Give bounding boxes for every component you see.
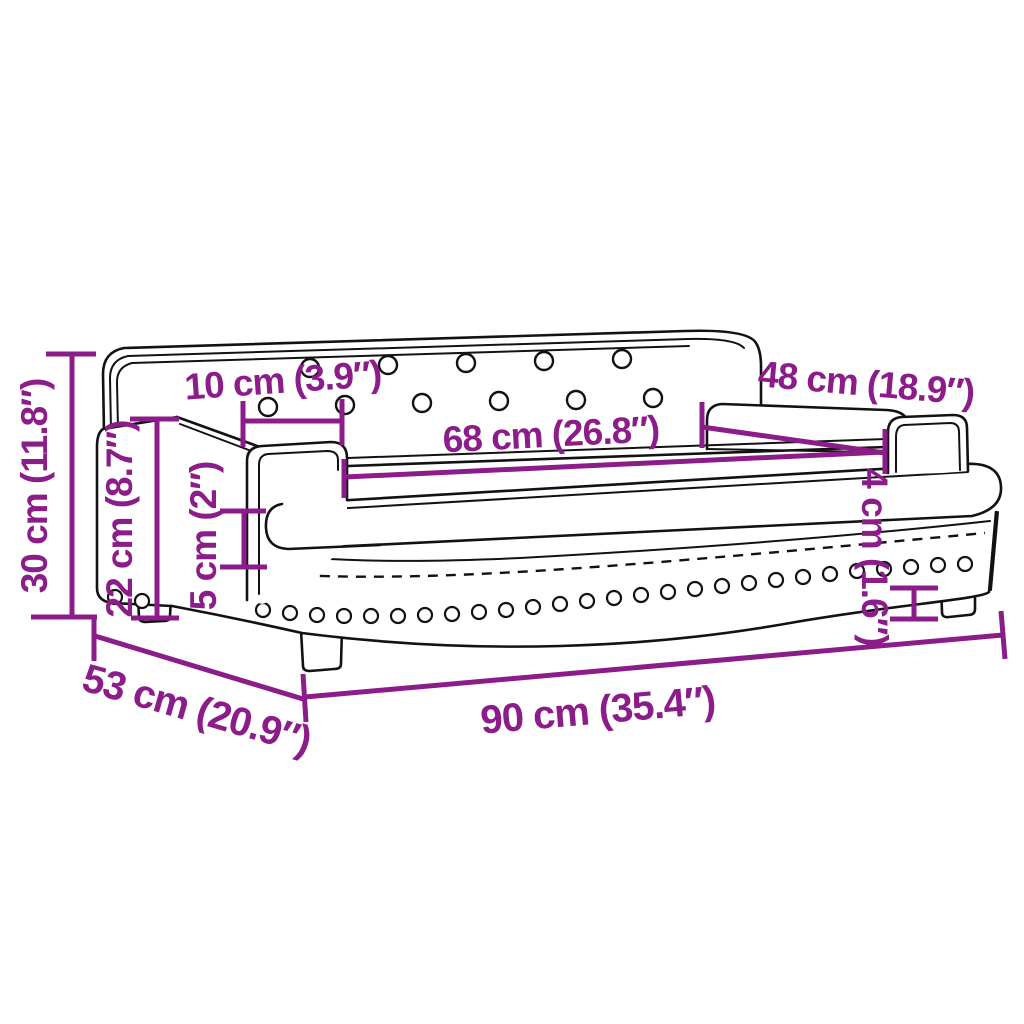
stud xyxy=(310,608,324,622)
stud xyxy=(607,591,621,605)
button xyxy=(336,396,354,414)
stud xyxy=(823,567,837,581)
label-armrest-height: 22 cm (8.7″) xyxy=(99,421,140,618)
stud xyxy=(634,588,648,602)
label-cushion-thickness: 5 cm (2″) xyxy=(183,462,224,611)
stud xyxy=(904,560,918,574)
label-leg-height: 4 cm (1.6″) xyxy=(854,468,895,645)
button xyxy=(457,354,475,372)
button xyxy=(567,391,585,409)
stud xyxy=(418,608,432,622)
button xyxy=(644,389,662,407)
stud xyxy=(526,600,540,614)
stud xyxy=(283,606,297,620)
label-depth: 53 cm (20.9″) xyxy=(78,656,316,763)
stud xyxy=(445,607,459,621)
stud xyxy=(256,603,270,617)
stud xyxy=(715,579,729,593)
stud xyxy=(472,605,486,619)
diagram-canvas: 30 cm (11.8″) 22 cm (8.7″) 10 cm (3.9″) … xyxy=(0,0,1024,1024)
stud xyxy=(769,573,783,587)
sofa-dimension-diagram: 30 cm (11.8″) 22 cm (8.7″) 10 cm (3.9″) … xyxy=(0,0,1024,1024)
button xyxy=(613,350,631,368)
stud xyxy=(364,609,378,623)
stud xyxy=(499,603,513,617)
stud xyxy=(796,570,810,584)
stud xyxy=(391,609,405,623)
button xyxy=(490,392,508,410)
stud xyxy=(553,597,567,611)
stud xyxy=(931,558,945,572)
label-armrest-length: 48 cm (18.9″) xyxy=(757,353,976,413)
button xyxy=(535,352,553,370)
stud xyxy=(337,609,351,623)
stud xyxy=(688,582,702,596)
stud xyxy=(661,585,675,599)
stud xyxy=(580,594,594,608)
stud xyxy=(958,557,972,571)
dim-tick xyxy=(1001,611,1005,659)
label-width: 90 cm (35.4″) xyxy=(479,678,717,742)
button xyxy=(413,394,431,412)
button xyxy=(379,356,397,374)
label-total-height: 30 cm (11.8″) xyxy=(14,379,55,594)
stud xyxy=(742,576,756,590)
